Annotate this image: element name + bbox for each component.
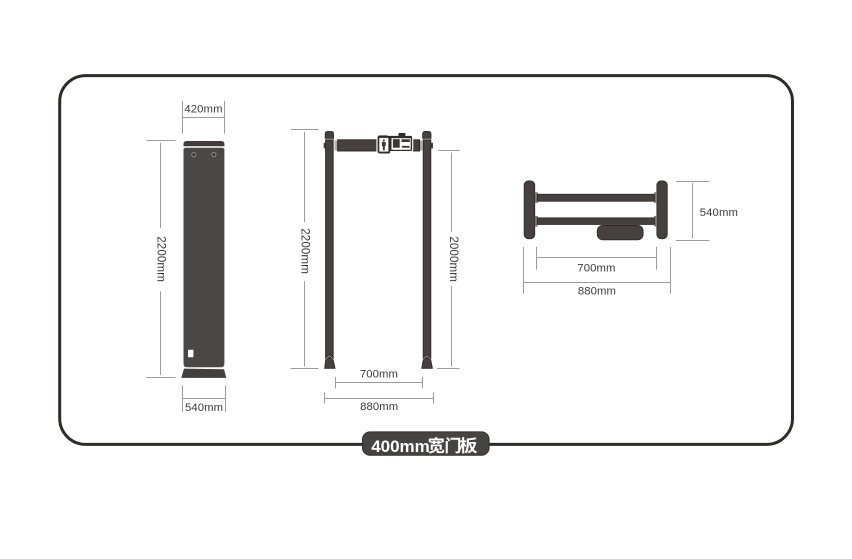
svg-text:700mm: 700mm [577,262,615,274]
svg-text:2200mm: 2200mm [155,236,168,282]
svg-text:880mm: 880mm [578,285,616,297]
svg-text:2000mm: 2000mm [447,236,460,282]
svg-text:400mm: 400mm [371,437,430,456]
svg-text:2200mm: 2200mm [299,228,312,274]
svg-text:540mm: 540mm [700,207,738,219]
svg-text:540mm: 540mm [185,402,223,414]
svg-text:700mm: 700mm [360,368,398,380]
svg-text:420mm: 420mm [184,104,222,116]
svg-text:880mm: 880mm [360,401,398,413]
